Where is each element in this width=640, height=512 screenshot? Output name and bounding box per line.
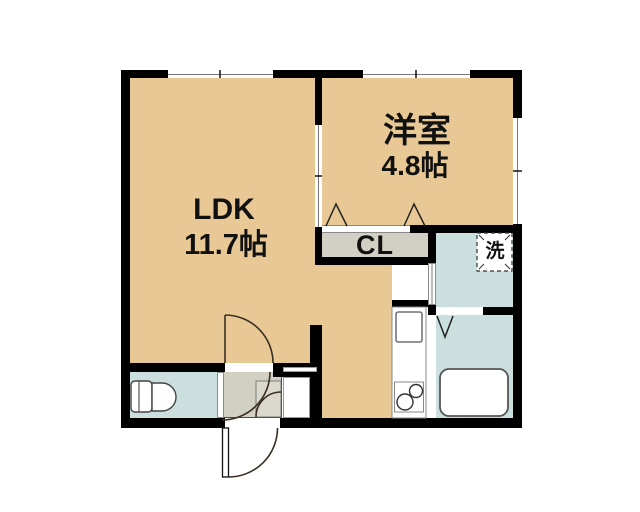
room-western-size: 4.8帖 [345,152,485,180]
window-western-top [363,70,470,78]
wall-washroom-left-upper [428,233,436,263]
wall-bottom-left [121,418,225,428]
washroom-sliding-door [428,263,436,305]
toilet-door [217,372,224,418]
bathroom-door-opening [436,307,483,315]
stove-icon [397,394,413,410]
floorplan-canvas: LDK 11.7帖 洋室 4.8帖 CL 洗 [0,0,640,512]
entry-storage-nook [283,377,310,418]
closet-label: CL [335,232,415,259]
wall-left [121,70,130,428]
sink-icon [396,312,422,342]
sliding-door-ldk-western [315,125,322,227]
wall-toilet-top [130,363,225,372]
bathroom-floor [436,315,513,418]
stove-module [395,382,424,412]
room-western-label: 洋室 [347,114,487,148]
toilet-room-floor [130,372,217,418]
wall-washroom-top [428,225,513,233]
window-western-right [513,118,522,224]
kitchen-corridor-floor [313,262,392,418]
stove-icon [410,385,423,398]
room-ldk-label: LDK [154,195,294,225]
entry-door-swing-icon [229,428,278,477]
window-ldk-top [168,70,273,78]
laundry-label: 洗 [475,242,515,261]
entry-door-gap [225,418,280,428]
entry-stub-slot [283,367,317,372]
wall-bottom-right [280,418,522,428]
wall-counter-stub [392,300,428,307]
entry-door-leaf [223,428,229,477]
kitchen-counter [392,307,426,418]
ldk-entry-door-opening [225,363,273,372]
room-ldk-size: 11.7帖 [146,231,306,260]
